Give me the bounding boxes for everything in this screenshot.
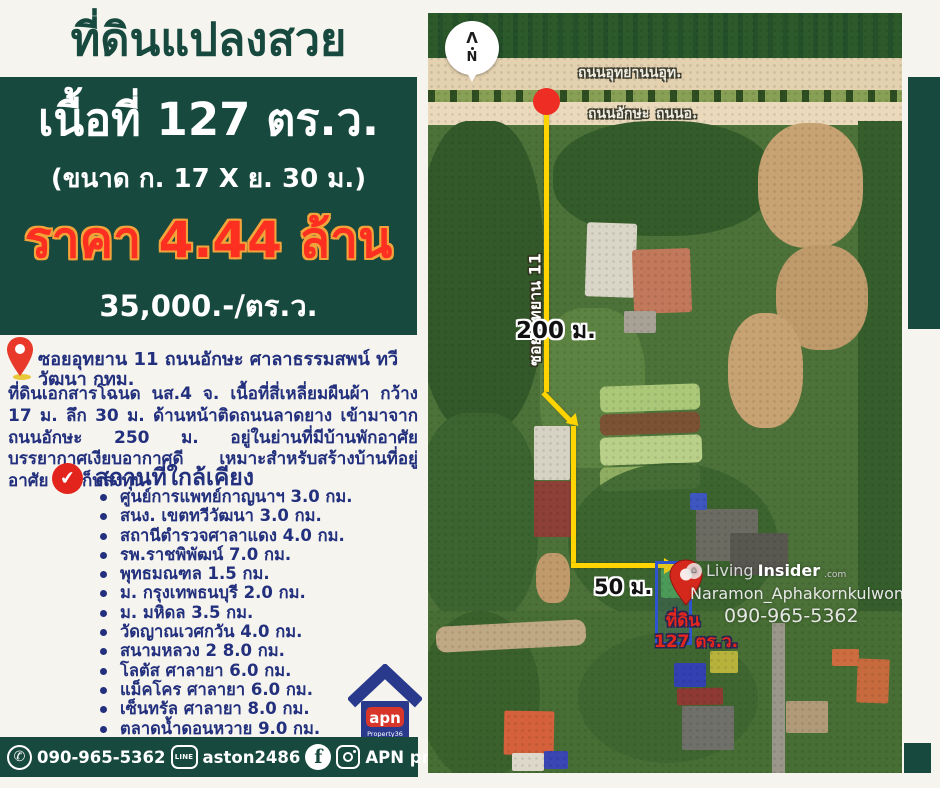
map-house (504, 711, 555, 756)
phone-number[interactable]: 090-965-5362 (37, 748, 166, 767)
apn-logo: apn Property36 (348, 664, 422, 746)
location-row: ซอยอุทยาน 11 ถนนอักษะ ศาลาธรรมสพน์ ทวีวั… (6, 336, 422, 390)
map-road-median (428, 90, 902, 102)
nearby-item: สถานีตำรวจศาลาแดง 4.0 กม. (98, 526, 418, 545)
map-house (534, 481, 572, 537)
road-label-partial: ถนนอ. (656, 103, 697, 125)
map-terrain-patch (536, 553, 570, 603)
compass-north-label: N (467, 52, 478, 64)
map-road-vertical (772, 623, 785, 773)
watermark-phone: 090-965-5362 (724, 605, 859, 627)
watermark-brand-light: Living (706, 561, 754, 580)
map-pin-icon (6, 336, 38, 382)
nearby-item: ม. กรุงเทพธนบุรี 2.0 กม. (98, 583, 418, 602)
page-title: ที่ดินแปลงสวย (0, 6, 417, 74)
green-accent-square (904, 743, 931, 773)
instagram-icon[interactable] (336, 745, 360, 769)
map-house (585, 222, 638, 298)
map-house (786, 701, 828, 733)
watermark-logo-icon: ⌂ (686, 563, 702, 579)
map-house (624, 311, 656, 333)
plot-area-label: 127 ตร.ว. (654, 628, 738, 655)
watermark-brand-bold: Insider (758, 561, 821, 580)
address-text: ซอยอุทยาน 11 ถนนอักษะ ศาลาธรรมสพน์ ทวีวั… (38, 336, 422, 390)
map-garden-row (600, 383, 701, 412)
map-house (544, 751, 568, 769)
map-house (682, 706, 734, 750)
apn-logo-text: apn (369, 709, 401, 727)
map-terrain-patch (428, 413, 538, 623)
map-garden-row (600, 411, 701, 435)
road-label-top: ถนนอุทยานนอุท. (578, 62, 681, 84)
map-house (690, 493, 707, 510)
map-house (674, 663, 706, 687)
line-id[interactable]: aston2486 (203, 748, 301, 767)
facebook-icon[interactable]: f (305, 744, 331, 770)
nearby-item: ศูนย์การแพทย์กาญนาฯ 3.0 กม. (98, 487, 418, 506)
watermark-brand: ⌂ LivingInsider .com (686, 561, 846, 580)
satellite-map: Λ N ถนนอุทยานนอุท. ถนนอักษะ ถนนอ. ซอย อุ… (428, 13, 902, 773)
road-junction-marker (533, 88, 560, 115)
map-terrain-patch (553, 121, 773, 236)
map-terrain-patch (728, 313, 803, 428)
map-house (512, 753, 544, 771)
watermark-brand-tld: .com (824, 570, 846, 580)
unit-price-text: 35,000.-/ตร.ว. (99, 283, 317, 329)
route-line-vertical-2 (571, 426, 576, 565)
watermark-username: Naramon_Aphakornkulwong (690, 584, 902, 603)
map-house (534, 426, 570, 480)
map-terrain-patch (758, 123, 863, 248)
plot-size-text: (ขนาด ก. 17 X ย. 30 ม.) (51, 158, 366, 199)
map-garden-row (600, 434, 703, 466)
nearby-item: วัดญาณเวศกวัน 4.0 กม. (98, 622, 418, 641)
map-house (856, 658, 890, 703)
nearby-item: รพ.ราชพิพัฒน์ 7.0 กม. (98, 545, 418, 564)
map-house (832, 649, 859, 666)
map-crop-field (428, 13, 902, 58)
road-label-aksa: ถนนอักษะ (588, 103, 649, 125)
phone-icon[interactable]: ✆ (7, 745, 32, 770)
price-box: เนื้อที่ 127 ตร.ว. (ขนาด ก. 17 X ย. 30 ม… (0, 77, 417, 335)
distance-50m-label: 50 ม. (594, 571, 652, 604)
map-house (677, 688, 723, 706)
contact-bar: ✆ 090-965-5362 LINE aston2486 f APN prop… (0, 737, 418, 777)
route-line-horizontal (571, 563, 666, 568)
map-house (632, 248, 692, 314)
nearby-item: สนง. เขตทวีวัฒนา 3.0 กม. (98, 506, 418, 525)
line-icon[interactable]: LINE (171, 745, 198, 769)
distance-200m-label: 200 ม. (516, 313, 596, 349)
plot-area-text: เนื้อที่ 127 ตร.ว. (38, 83, 379, 155)
price-text: ราคา 4.44 ล้าน (25, 201, 393, 280)
soi-label: ซอย อุทยาน 11 (524, 230, 549, 390)
compass-icon: Λ N (445, 21, 499, 75)
nearby-item: ม. มหิดล 3.5 กม. (98, 603, 418, 622)
nearby-item: สนามหลวง 2 8.0 กม. (98, 641, 418, 660)
land-sale-flyer: ที่ดินแปลงสวย เนื้อที่ 127 ตร.ว. (ขนาด ก… (0, 0, 940, 788)
nearby-item: พุทธมณฑล 1.5 กม. (98, 564, 418, 583)
compass-arrow: Λ (466, 32, 478, 45)
check-icon: ✔ (50, 461, 84, 495)
green-accent-strip (908, 77, 940, 329)
